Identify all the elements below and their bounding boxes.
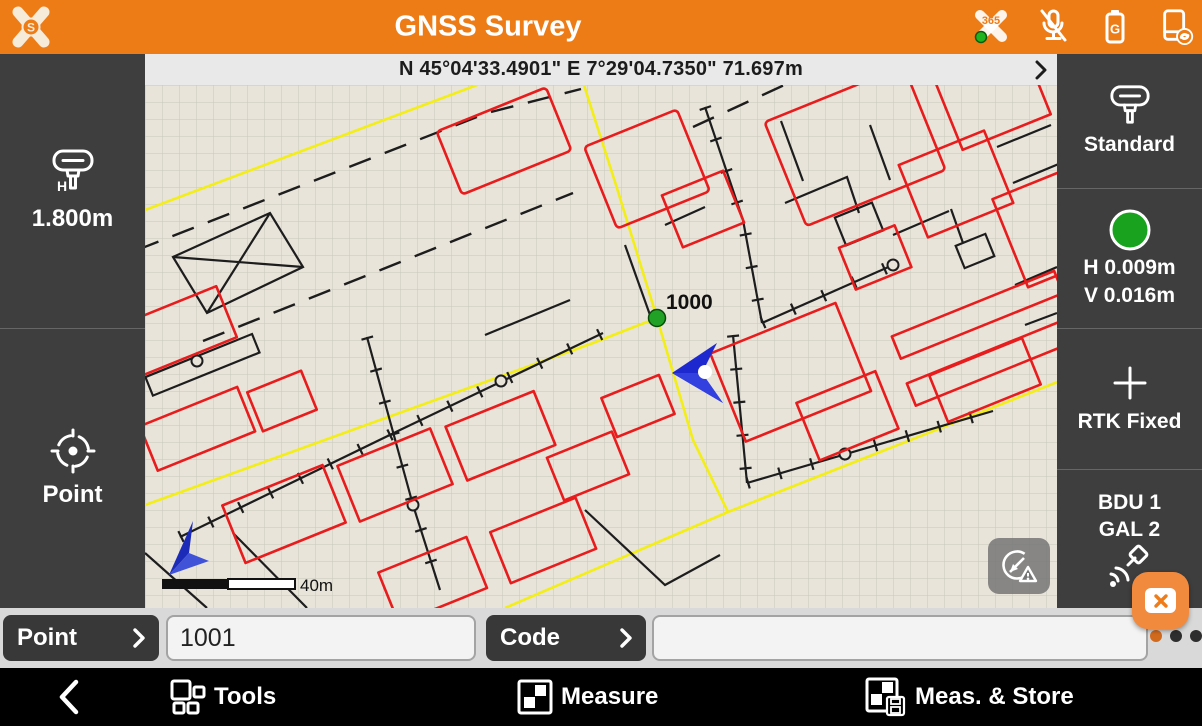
measure-icon xyxy=(517,679,553,715)
measure-button[interactable]: Measure xyxy=(517,668,658,726)
chevron-right-icon xyxy=(620,628,632,648)
point-crosshair-icon xyxy=(50,428,96,474)
tools-grid-icon xyxy=(170,679,206,715)
antenna-height-value: 1.800m xyxy=(32,204,113,234)
survey-mode-button[interactable]: Standard xyxy=(1057,54,1202,188)
close-icon xyxy=(1145,588,1176,613)
point-name-input[interactable] xyxy=(166,615,476,661)
fix-status-circle xyxy=(1108,208,1152,252)
bottom-toolbar: Tools Measure Meas. & Store xyxy=(0,668,1202,726)
scale-label: 40m xyxy=(300,576,333,595)
antenna-height-button[interactable]: H 1.800m xyxy=(0,54,145,328)
h-accuracy: H 0.009m xyxy=(1083,255,1175,281)
battery-letter: G xyxy=(1110,22,1120,37)
current-coordinates: N 45°04'33.4901" E 7°29'04.7350" 71.697m xyxy=(399,58,803,81)
xpad-logo-icon[interactable]: S xyxy=(8,4,54,50)
gnss-battery-icon[interactable]: G xyxy=(1096,7,1134,47)
measure-label: Measure xyxy=(561,683,658,711)
position-dot xyxy=(698,365,712,379)
connection-green-dot xyxy=(976,32,987,43)
compass-warning-button[interactable] xyxy=(988,538,1050,594)
quick-entry-row: Point Code xyxy=(0,608,1202,668)
antenna-icon: H xyxy=(47,148,99,198)
point-name-button[interactable]: Point xyxy=(3,615,159,661)
cad-map-drawing: 1000 xyxy=(145,85,1057,608)
constellation-line2: GAL 2 xyxy=(1099,517,1160,543)
h-symbol: H xyxy=(57,178,67,194)
survey-mode-label: Standard xyxy=(1084,132,1175,158)
measure-store-button[interactable]: Meas. & Store xyxy=(865,668,1074,726)
accuracy-status-button[interactable]: H 0.009m V 0.016m xyxy=(1057,189,1202,328)
measure-store-icon xyxy=(865,677,907,717)
close-panel-fab[interactable] xyxy=(1132,572,1189,629)
body-row: H 1.800m Point N 45°04'33.4901" xyxy=(0,54,1202,608)
code-input[interactable] xyxy=(652,615,1148,661)
badge-365: 365 xyxy=(982,15,1000,27)
page-dot[interactable] xyxy=(1190,630,1202,642)
code-button[interactable]: Code xyxy=(486,615,646,661)
right-sidebar: Standard H 0.009m V 0.016m RTK Fixed xyxy=(1057,54,1202,608)
chevron-right-icon xyxy=(133,628,145,648)
position-bar[interactable]: N 45°04'33.4901" E 7°29'04.7350" 71.697m xyxy=(145,54,1057,85)
app-header: S GNSS Survey 365 xyxy=(0,0,1202,54)
page-title: GNSS Survey xyxy=(395,11,582,44)
rtk-status-button[interactable]: RTK Fixed xyxy=(1057,329,1202,469)
header-status-icons: 365 G xyxy=(972,7,1196,47)
map-column: N 45°04'33.4901" E 7°29'04.7350" 71.697m xyxy=(145,54,1057,608)
page-dot-active[interactable] xyxy=(1150,630,1162,642)
measure-store-label: Meas. & Store xyxy=(915,683,1074,711)
compass-icon xyxy=(997,545,1041,587)
v-accuracy: V 0.016m xyxy=(1084,283,1175,309)
code-button-label: Code xyxy=(500,624,560,652)
antenna-icon xyxy=(1107,84,1153,126)
constellation-line1: BDU 1 xyxy=(1098,490,1161,516)
tools-label: Tools xyxy=(214,683,276,711)
page-indicator[interactable] xyxy=(1150,630,1202,642)
plus-crosshair-icon xyxy=(1110,363,1150,403)
chevron-left-icon xyxy=(58,679,80,715)
map-canvas[interactable]: 1000 xyxy=(145,85,1057,608)
point-mode-button[interactable]: Point xyxy=(0,329,145,608)
logo-letter: S xyxy=(27,21,35,35)
point-marker xyxy=(649,310,666,327)
device-sync-icon[interactable] xyxy=(1158,7,1196,47)
page-dot[interactable] xyxy=(1170,630,1182,642)
point-number-label: 1000 xyxy=(666,291,713,314)
mic-muted-icon[interactable] xyxy=(1034,7,1072,47)
back-button[interactable] xyxy=(58,668,80,726)
tools-button[interactable]: Tools xyxy=(170,668,276,726)
chevron-right-icon[interactable] xyxy=(1035,60,1047,80)
point-button-label: Point xyxy=(17,624,77,652)
xpad365-status-icon[interactable]: 365 xyxy=(972,7,1010,47)
rtk-fix-label: RTK Fixed xyxy=(1078,409,1182,435)
gnss-survey-app: S GNSS Survey 365 xyxy=(0,0,1202,726)
point-mode-label: Point xyxy=(43,480,103,510)
left-sidebar: H 1.800m Point xyxy=(0,54,145,608)
